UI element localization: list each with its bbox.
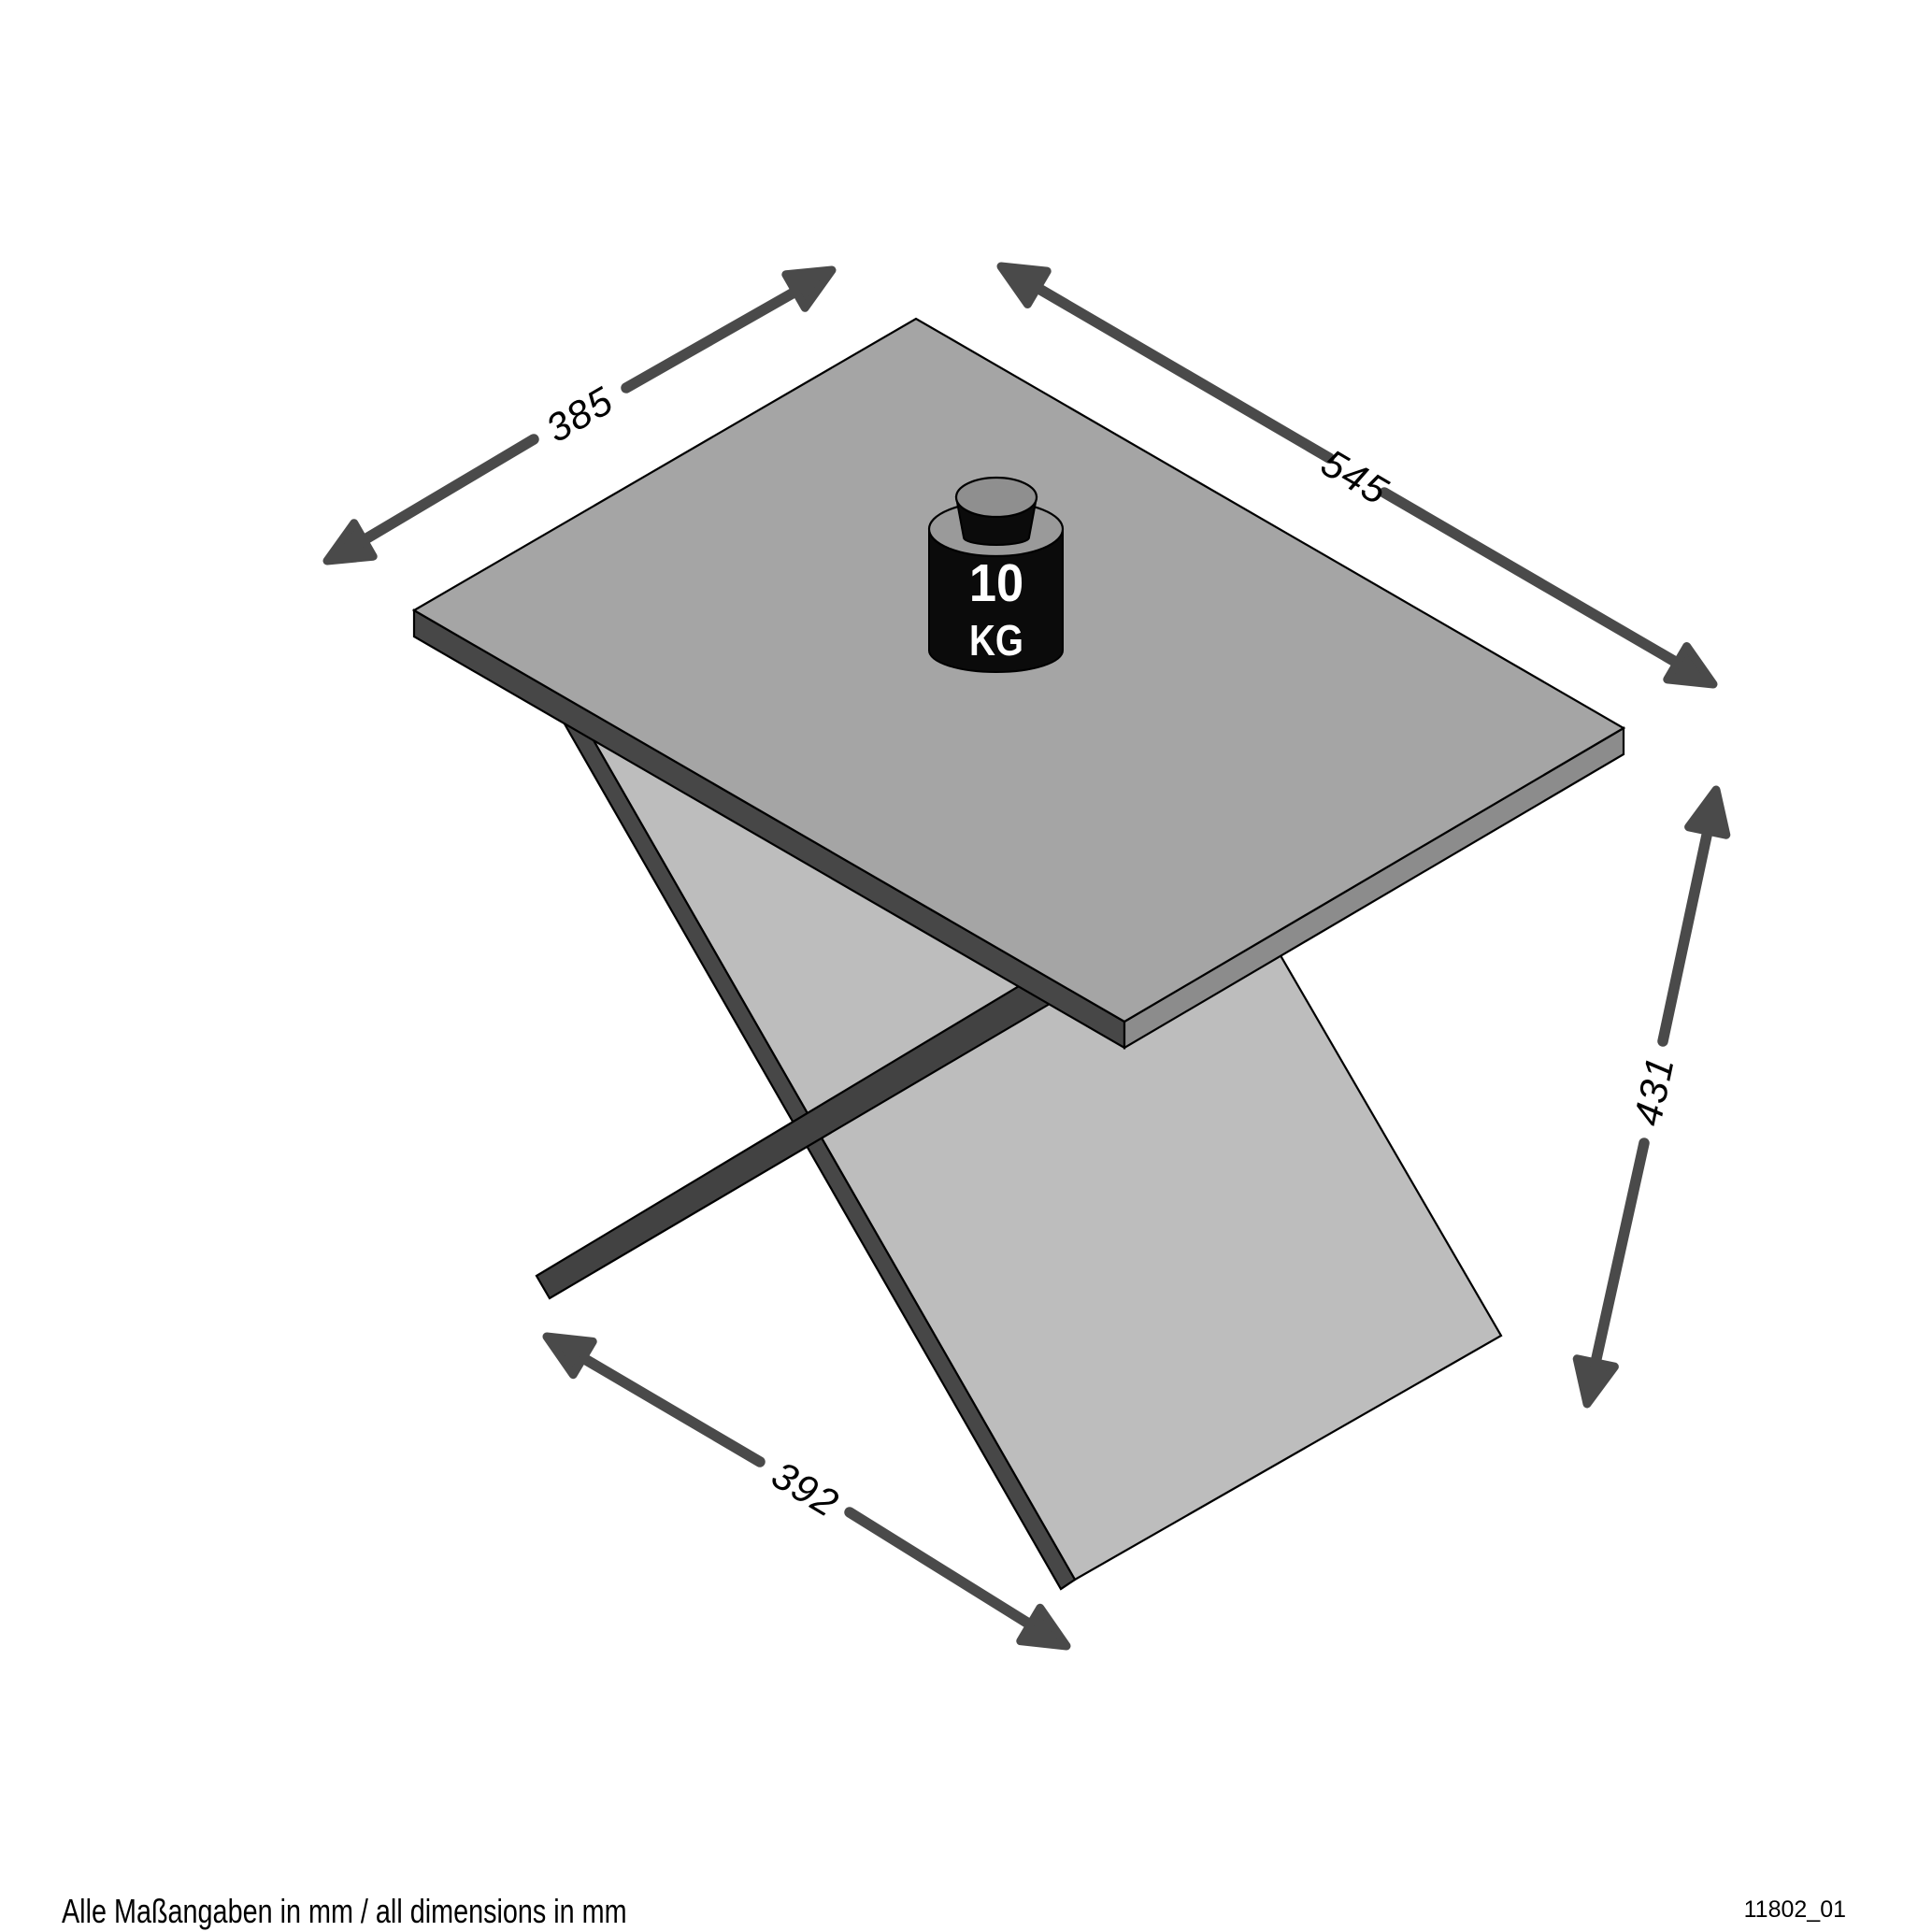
svg-text:11802_01: 11802_01 (1744, 1896, 1846, 1923)
svg-text:KG: KG (969, 617, 1023, 665)
svg-text:Alle Maßangaben in mm / all di: Alle Maßangaben in mm / all dimensions i… (62, 1892, 627, 1930)
svg-text:10: 10 (969, 552, 1023, 613)
